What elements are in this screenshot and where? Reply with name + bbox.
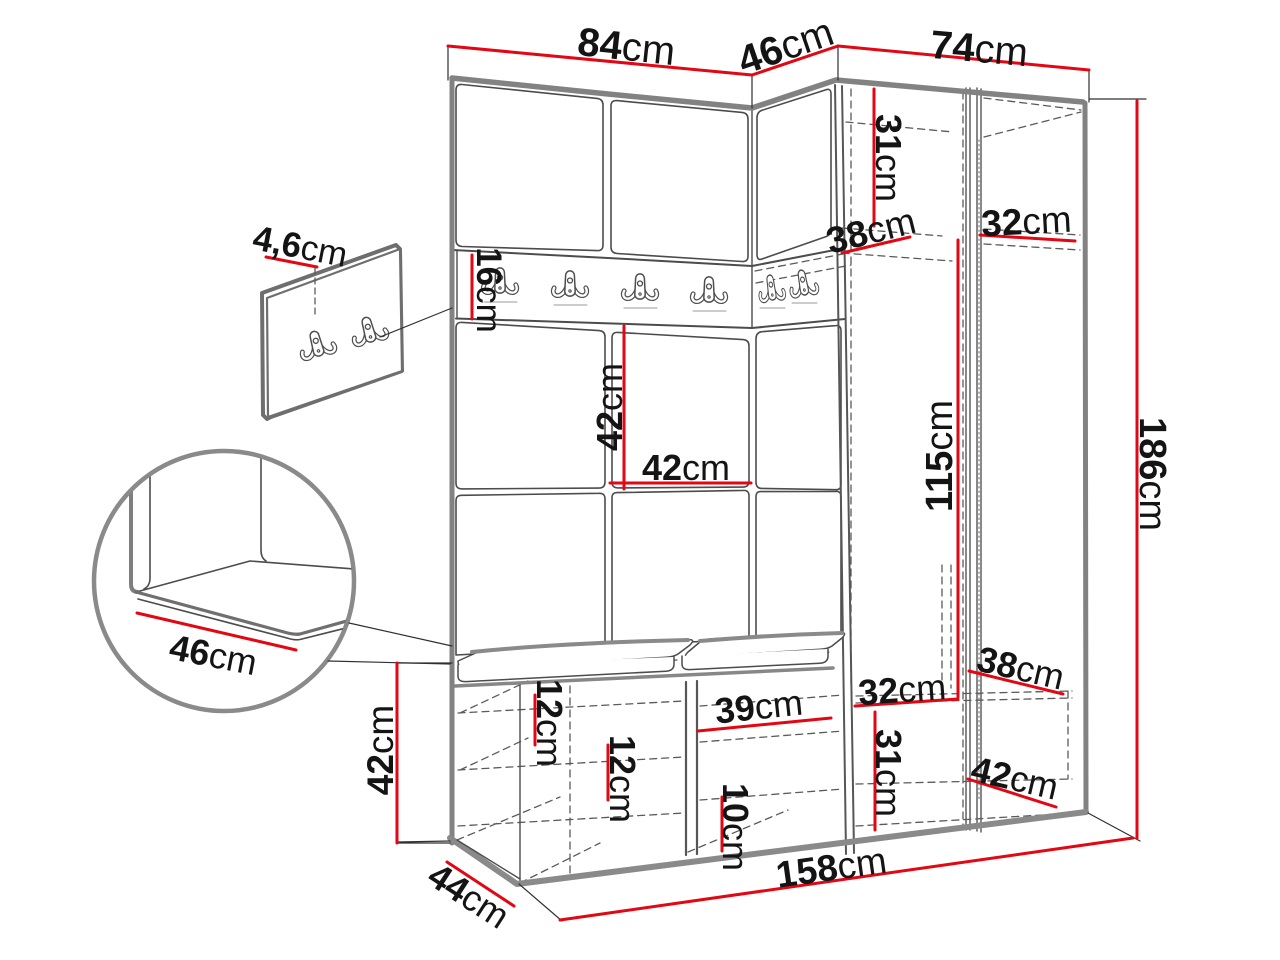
svg-text:10cm: 10cm — [715, 783, 756, 871]
svg-text:16cm: 16cm — [469, 247, 508, 333]
svg-text:31cm: 31cm — [868, 729, 909, 817]
svg-text:74cm: 74cm — [928, 23, 1029, 75]
svg-text:4,6cm: 4,6cm — [250, 218, 351, 274]
svg-text:42cm: 42cm — [360, 705, 401, 795]
svg-text:12cm: 12cm — [602, 735, 643, 823]
svg-text:39cm: 39cm — [713, 682, 805, 732]
svg-text:42cm: 42cm — [642, 447, 730, 488]
svg-text:186cm: 186cm — [1131, 417, 1173, 531]
svg-text:44cm: 44cm — [421, 854, 517, 936]
svg-text:42cm: 42cm — [589, 363, 630, 451]
svg-text:31cm: 31cm — [868, 114, 909, 202]
svg-text:84cm: 84cm — [575, 20, 677, 74]
svg-text:38cm: 38cm — [973, 638, 1068, 698]
svg-text:32cm: 32cm — [980, 199, 1073, 245]
svg-text:32cm: 32cm — [857, 666, 948, 713]
svg-text:12cm: 12cm — [529, 679, 570, 767]
svg-text:115cm: 115cm — [919, 400, 961, 512]
svg-text:46cm: 46cm — [732, 10, 839, 83]
